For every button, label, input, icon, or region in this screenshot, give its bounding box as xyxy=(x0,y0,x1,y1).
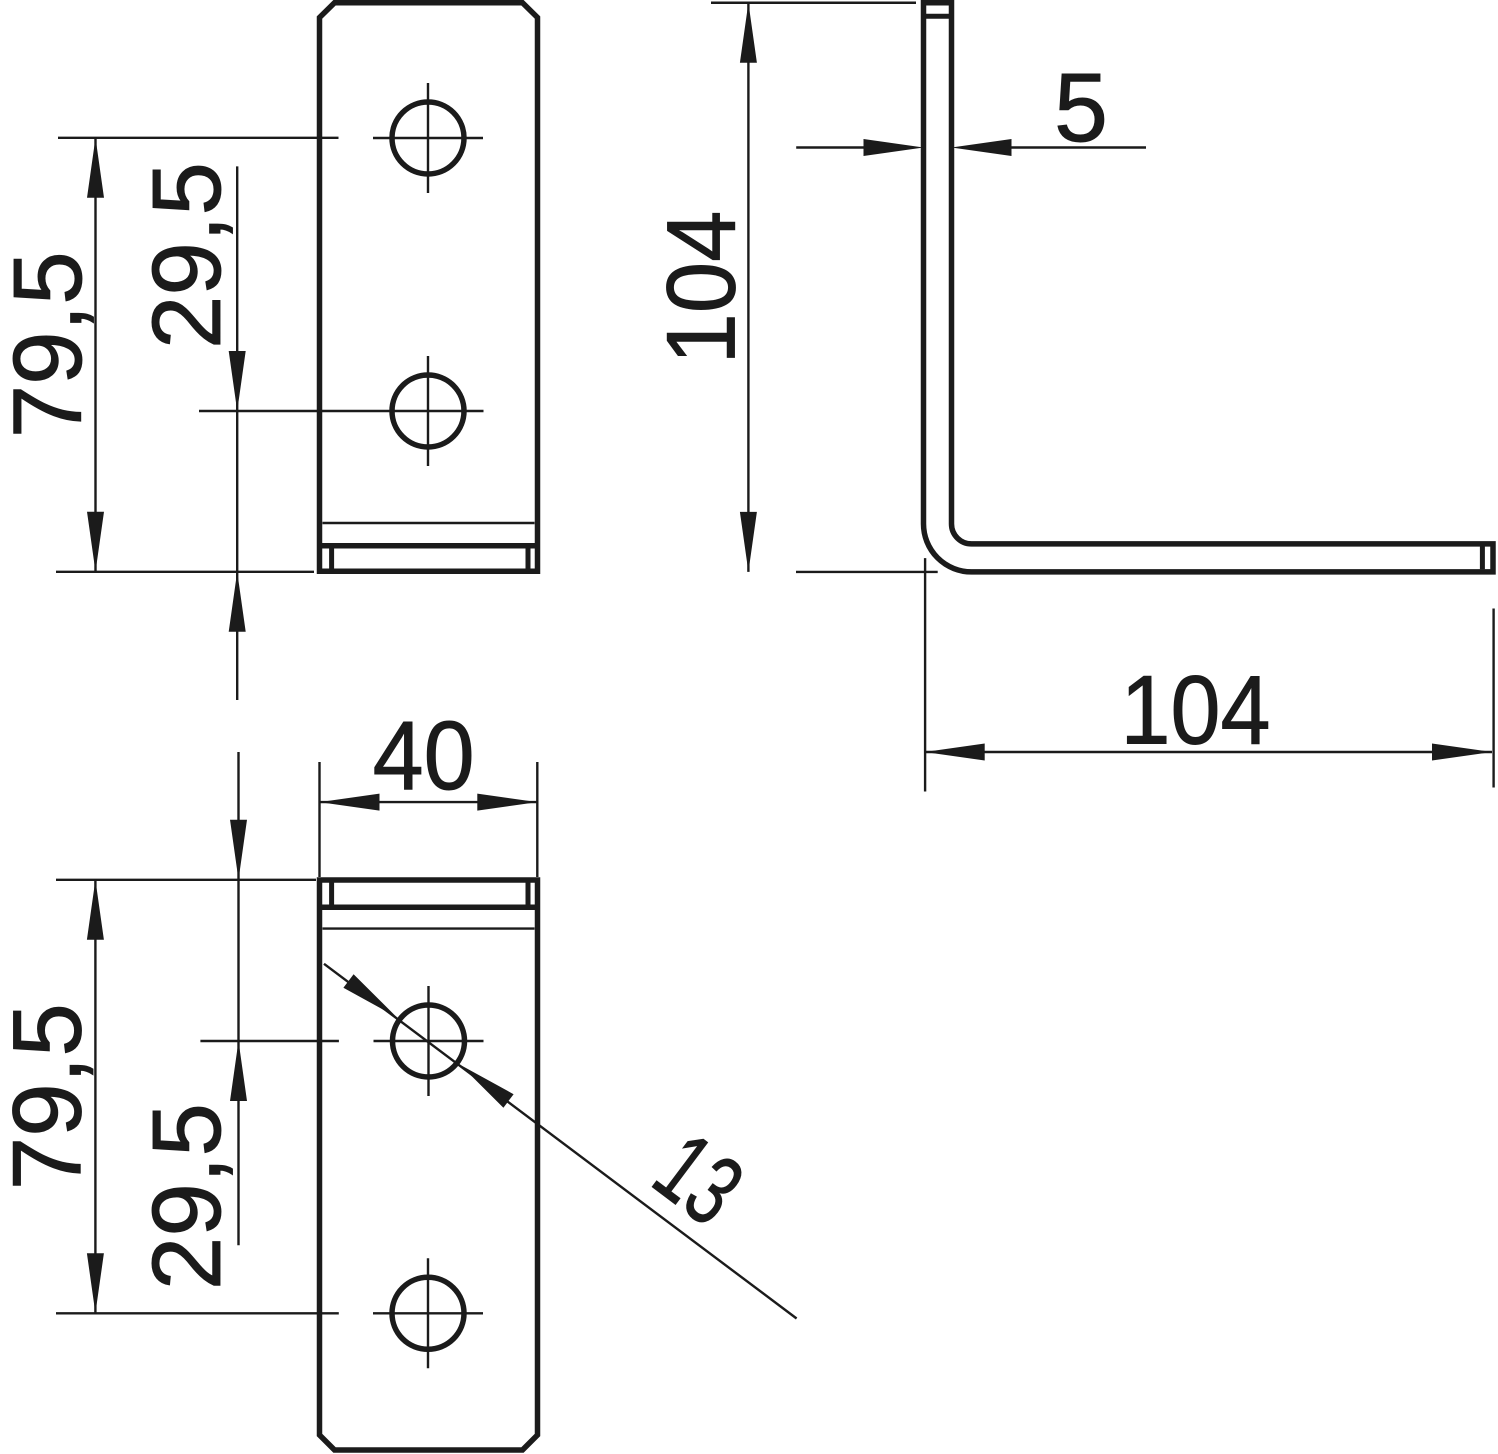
svg-text:5: 5 xyxy=(1054,53,1108,162)
svg-text:40: 40 xyxy=(373,701,475,810)
svg-text:104: 104 xyxy=(1121,656,1271,765)
svg-text:79,5: 79,5 xyxy=(0,1003,102,1190)
svg-text:79,5: 79,5 xyxy=(0,251,102,438)
svg-text:29,5: 29,5 xyxy=(132,1103,241,1290)
svg-text:13: 13 xyxy=(635,1112,763,1247)
svg-text:104: 104 xyxy=(647,211,756,365)
svg-text:29,5: 29,5 xyxy=(132,162,241,349)
